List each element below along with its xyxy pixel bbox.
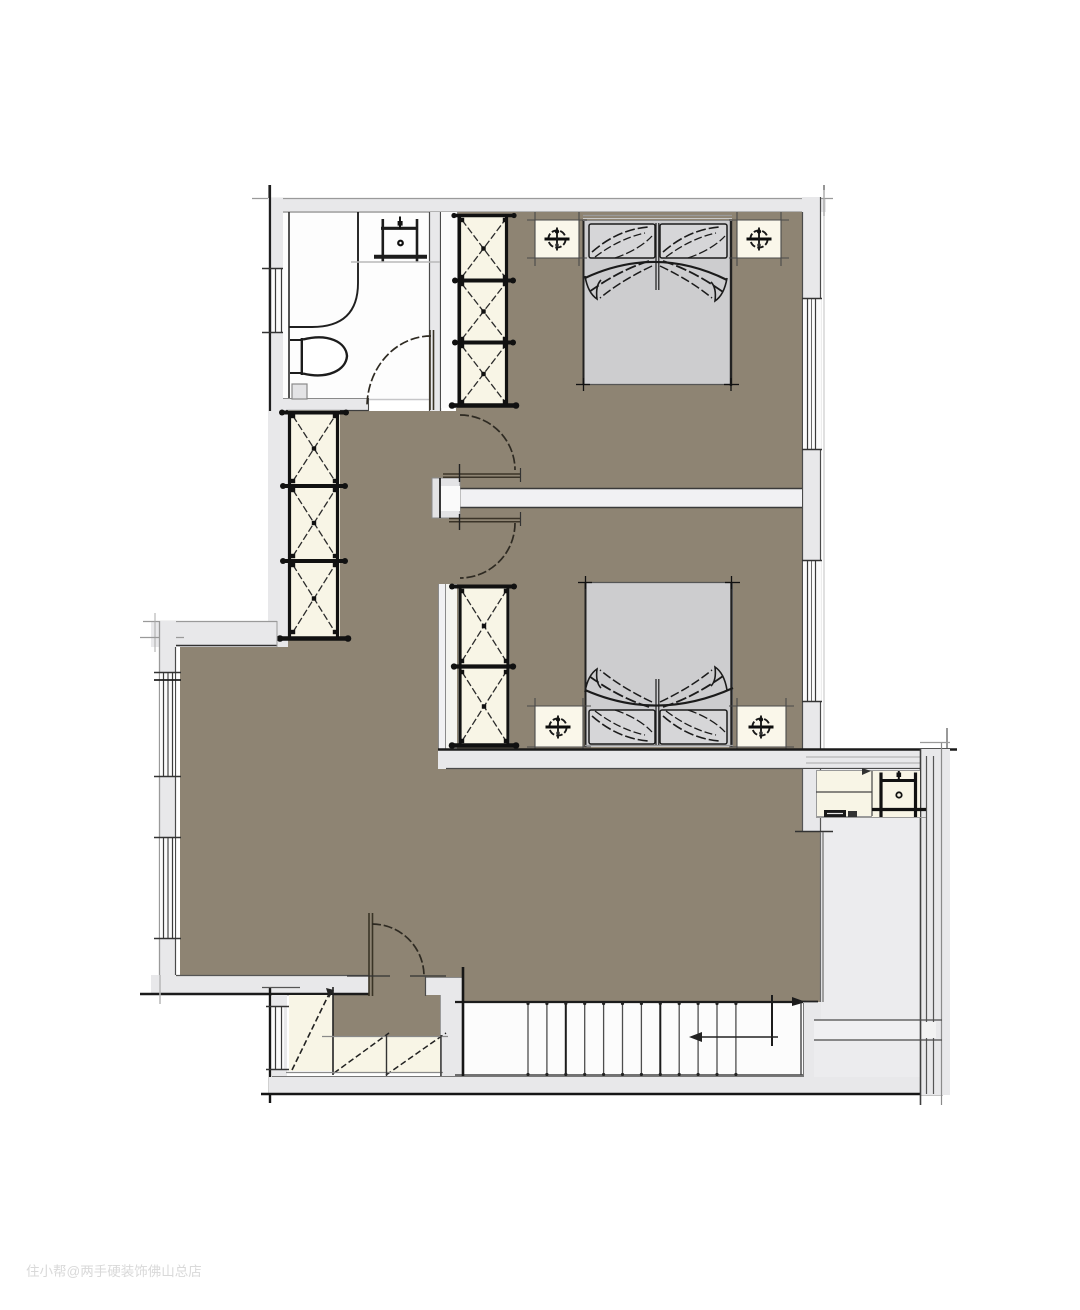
svg-text:住小帮@两手硬装饰佛山总店: 住小帮@两手硬装饰佛山总店: [26, 1264, 202, 1279]
